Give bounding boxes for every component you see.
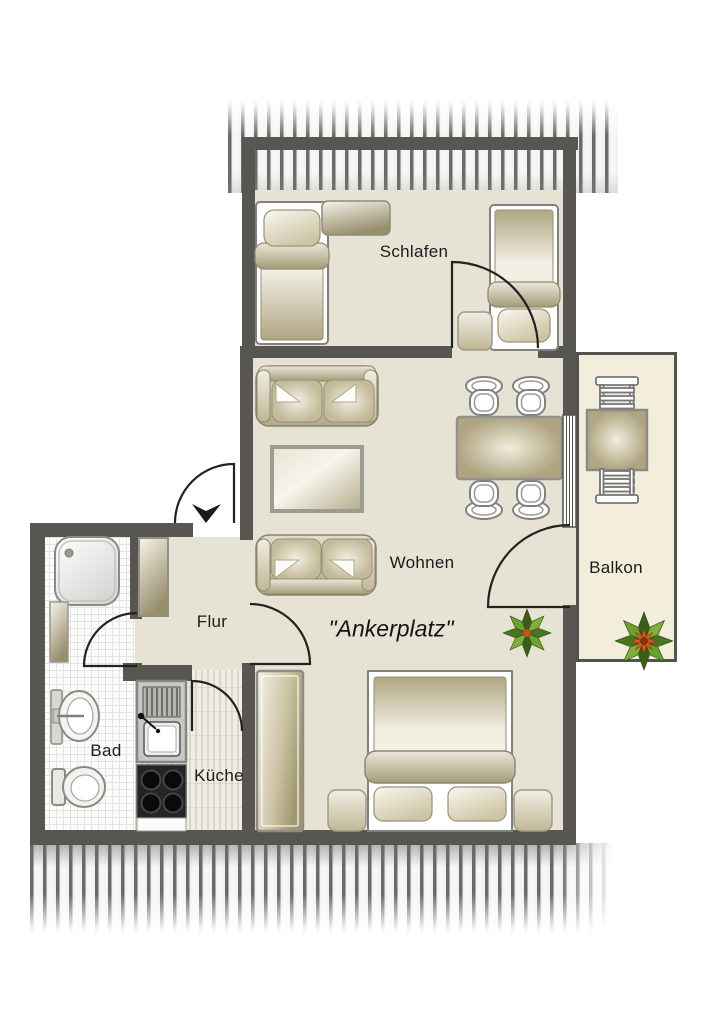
single-bed-left <box>255 202 329 344</box>
balcony-table <box>587 410 647 470</box>
balcony-chair-bottom <box>596 469 638 503</box>
furniture-layer <box>0 0 723 1024</box>
sofa-bottom <box>256 535 376 595</box>
nightstand-right <box>514 790 552 831</box>
kitchen-sink-unit <box>137 681 186 762</box>
shower <box>55 537 119 605</box>
entrance-arrow-icon <box>192 504 221 523</box>
bath-cabinet <box>50 602 68 662</box>
balcony-chair-top <box>596 377 638 411</box>
label-kueche: Küche <box>194 766 244 786</box>
label-schlafen: Schlafen <box>380 242 449 262</box>
window-balcony <box>563 415 576 527</box>
dresser <box>322 201 390 235</box>
single-bed-right <box>488 205 560 350</box>
door-balcony <box>488 525 570 607</box>
label-flur: Flur <box>197 612 227 632</box>
washbasin <box>51 690 99 744</box>
double-bed <box>365 671 515 831</box>
coffee-table <box>272 447 362 511</box>
nightstand-left <box>328 790 366 831</box>
sofa-top <box>256 366 378 426</box>
wardrobe <box>257 671 303 831</box>
door-wohnen <box>250 604 310 664</box>
hall-cabinet <box>139 538 168 616</box>
label-wohnen: Wohnen <box>390 553 455 573</box>
plant-wohnen-icon <box>503 609 551 657</box>
nightstand-schlafen <box>458 312 492 350</box>
apartment-name: "Ankerplatz" <box>329 616 454 643</box>
floor-plan: Schlafen Wohnen Balkon Flur Bad Küche "A… <box>0 0 723 1024</box>
door-kueche <box>192 681 242 731</box>
plant-balkon-icon <box>615 612 673 670</box>
stove <box>137 765 186 831</box>
dining-table <box>457 417 562 479</box>
label-bad: Bad <box>90 741 121 761</box>
label-balkon: Balkon <box>589 558 643 578</box>
door-bad <box>84 613 137 666</box>
toilet <box>52 767 105 807</box>
